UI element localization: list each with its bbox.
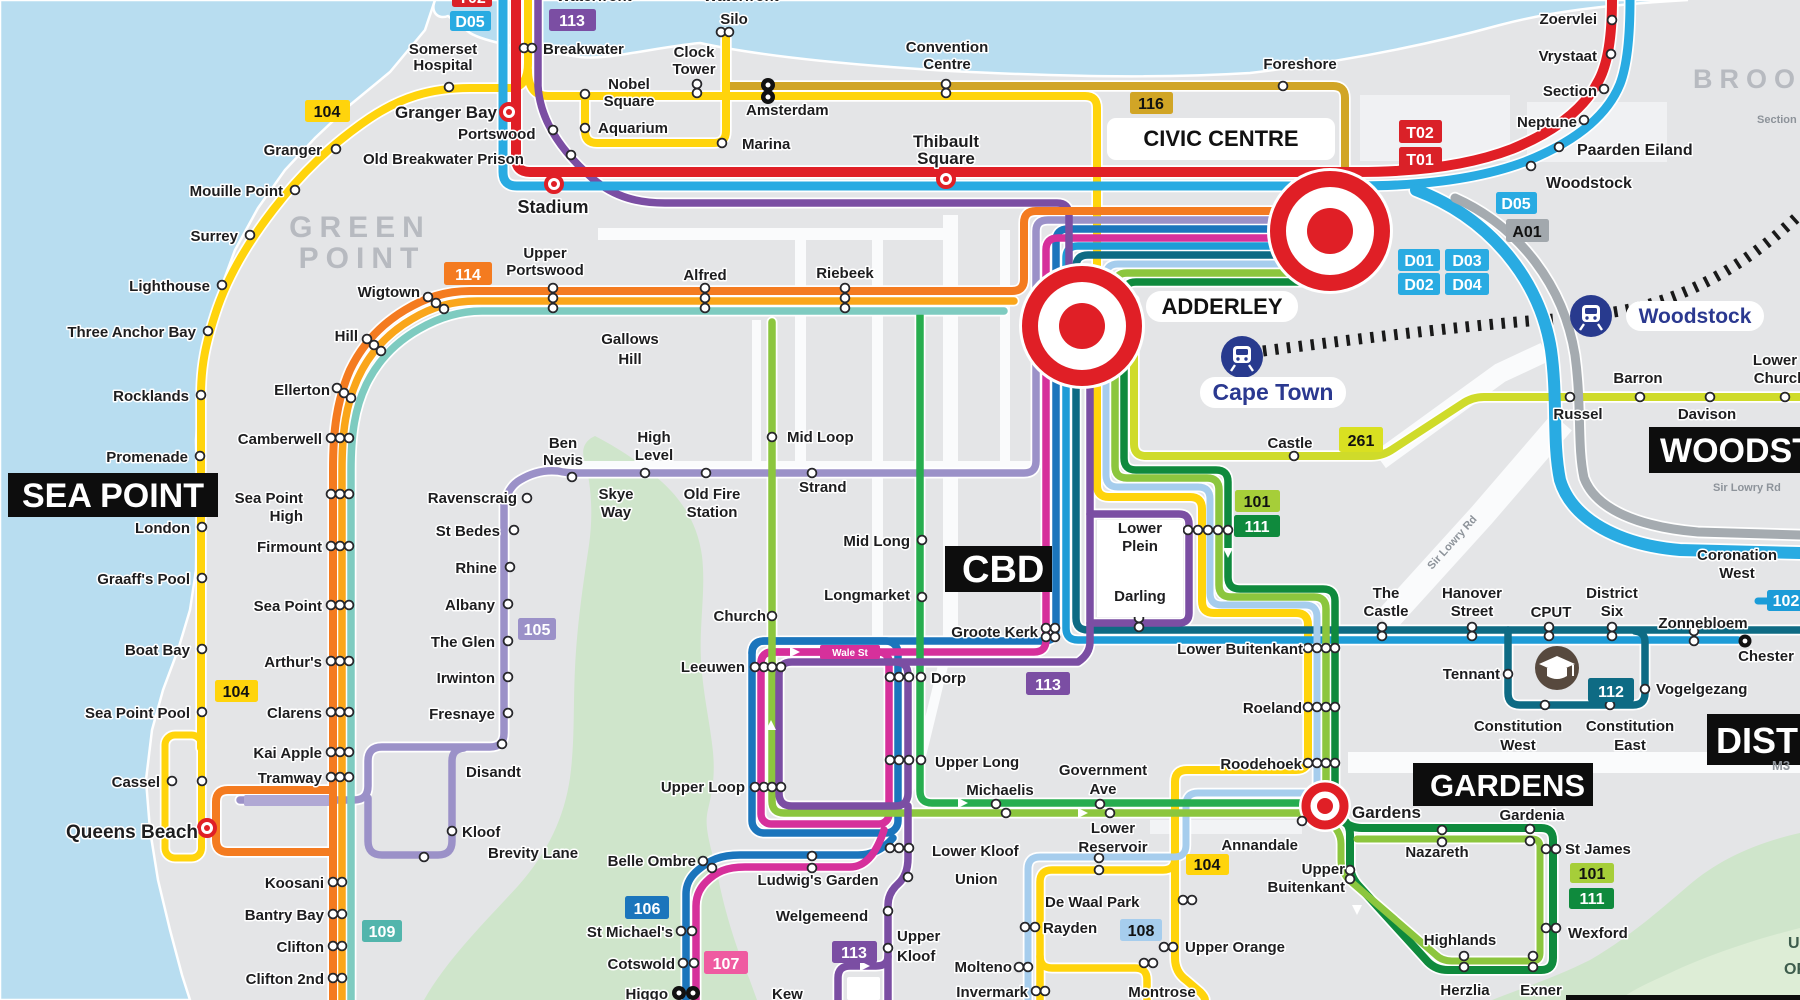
svg-text:OF: OF: [1784, 961, 1800, 978]
svg-text:Rocklands: Rocklands: [113, 388, 189, 405]
svg-text:Promenade: Promenade: [106, 449, 188, 466]
svg-text:Vrystaat: Vrystaat: [1539, 48, 1597, 65]
svg-text:Fresnaye: Fresnaye: [429, 706, 495, 723]
svg-text:ADDERLEY: ADDERLEY: [1161, 294, 1282, 319]
svg-text:D02: D02: [1404, 277, 1433, 294]
svg-text:GREEN: GREEN: [289, 211, 431, 244]
svg-text:D03: D03: [1452, 253, 1481, 270]
svg-text:Castle: Castle: [1267, 435, 1312, 452]
svg-text:112: 112: [1598, 684, 1624, 701]
svg-text:GARDENS: GARDENS: [1430, 768, 1585, 803]
svg-text:Constitution: Constitution: [1586, 718, 1674, 735]
svg-text:Barron: Barron: [1613, 370, 1662, 387]
svg-text:Queens Beach: Queens Beach: [66, 822, 198, 843]
svg-text:Wale St: Wale St: [832, 648, 868, 659]
svg-text:Rayden: Rayden: [1043, 920, 1097, 937]
svg-text:Old Breakwater Prison: Old Breakwater Prison: [363, 151, 524, 168]
svg-text:Irwinton: Irwinton: [437, 670, 495, 687]
svg-text:Ave: Ave: [1090, 781, 1117, 798]
svg-text:Nazareth: Nazareth: [1405, 844, 1468, 861]
svg-text:Molteno: Molteno: [955, 959, 1013, 976]
svg-text:D05: D05: [1501, 196, 1530, 213]
svg-text:Woodstock: Woodstock: [1639, 305, 1752, 328]
svg-text:Cape Town: Cape Town: [1213, 379, 1334, 405]
svg-text:Brevity Lane: Brevity Lane: [488, 845, 578, 862]
svg-text:Belle Ombre: Belle Ombre: [608, 853, 696, 870]
svg-text:St Bedes: St Bedes: [436, 523, 500, 540]
svg-text:261: 261: [1348, 433, 1375, 450]
svg-text:Higgo: Higgo: [626, 986, 669, 1000]
svg-text:Nobel: Nobel: [608, 76, 650, 93]
svg-text:Hill: Hill: [618, 351, 641, 368]
svg-text:Herzlia: Herzlia: [1440, 982, 1490, 999]
svg-text:Three Anchor Bay: Three Anchor Bay: [67, 324, 196, 341]
svg-text:Portswood: Portswood: [506, 262, 584, 279]
svg-text:Kloof: Kloof: [462, 824, 501, 841]
svg-text:St James: St James: [1565, 841, 1631, 858]
svg-text:High: High: [637, 429, 670, 446]
svg-text:Ludwig's Garden: Ludwig's Garden: [757, 872, 878, 889]
svg-text:Square: Square: [917, 149, 975, 168]
svg-text:Sea Point: Sea Point: [235, 490, 303, 507]
svg-text:Church: Church: [1754, 370, 1800, 387]
svg-text:111: 111: [1245, 519, 1270, 536]
svg-text:Welgemeend: Welgemeend: [776, 908, 868, 925]
svg-text:Lower Kloof: Lower Kloof: [932, 843, 1020, 860]
svg-text:111: 111: [1580, 891, 1605, 908]
svg-text:Longmarket: Longmarket: [824, 587, 910, 604]
svg-text:Old Fire: Old Fire: [684, 486, 741, 503]
svg-text:Union: Union: [955, 871, 998, 888]
svg-text:Clifton: Clifton: [277, 939, 324, 956]
svg-text:Six: Six: [1601, 603, 1624, 620]
svg-text:Convention: Convention: [906, 39, 989, 56]
svg-text:Cassel: Cassel: [112, 774, 160, 791]
svg-text:WOODSTO: WOODSTO: [1660, 432, 1800, 470]
svg-text:Disandt: Disandt: [466, 764, 521, 781]
svg-text:Camberwell: Camberwell: [238, 431, 322, 448]
svg-text:Lower: Lower: [1091, 820, 1135, 837]
svg-text:Mouille Point: Mouille Point: [190, 183, 283, 200]
svg-text:113: 113: [1035, 677, 1061, 694]
svg-text:Ravenscraig: Ravenscraig: [428, 490, 517, 507]
svg-text:Cotswold: Cotswold: [608, 956, 676, 973]
svg-text:Hill: Hill: [335, 328, 358, 345]
svg-text:Foreshore: Foreshore: [1263, 56, 1336, 73]
svg-text:Church: Church: [714, 608, 767, 625]
svg-text:High: High: [270, 508, 303, 525]
svg-text:Michaelis: Michaelis: [966, 782, 1034, 799]
svg-text:104: 104: [1194, 857, 1221, 874]
svg-text:Highlands: Highlands: [1424, 932, 1497, 949]
svg-text:Exner: Exner: [1520, 982, 1562, 999]
svg-text:Davison: Davison: [1678, 406, 1736, 423]
svg-text:104: 104: [314, 104, 341, 121]
svg-text:The Glen: The Glen: [431, 634, 495, 651]
svg-text:Street: Street: [1451, 603, 1494, 620]
svg-text:London: London: [135, 520, 190, 537]
svg-text:104: 104: [223, 684, 250, 701]
svg-text:POINT: POINT: [299, 242, 426, 275]
svg-text:West: West: [1500, 737, 1536, 754]
svg-text:Way: Way: [601, 504, 632, 521]
svg-text:102: 102: [1773, 593, 1800, 610]
svg-text:108: 108: [1128, 923, 1155, 940]
svg-text:Sea Point: Sea Point: [254, 598, 322, 615]
svg-text:CBD: CBD: [962, 549, 1044, 591]
svg-text:Mid Loop: Mid Loop: [787, 429, 854, 446]
svg-text:Mid Long: Mid Long: [843, 533, 910, 550]
svg-text:Buitenkant: Buitenkant: [1267, 879, 1345, 896]
svg-text:UN: UN: [1788, 935, 1800, 952]
svg-text:Wigtown: Wigtown: [358, 284, 420, 301]
svg-text:Clarens: Clarens: [267, 705, 322, 722]
svg-text:Square: Square: [604, 93, 655, 110]
svg-text:Clifton 2nd: Clifton 2nd: [246, 971, 324, 988]
svg-text:Zoervlei: Zoervlei: [1539, 11, 1597, 28]
svg-text:Section: Section: [1757, 114, 1797, 126]
svg-text:Aquarium: Aquarium: [598, 120, 668, 137]
svg-text:Invermark: Invermark: [956, 984, 1028, 1000]
svg-text:Kloof: Kloof: [897, 948, 936, 965]
svg-text:Paarden Eiland: Paarden Eiland: [1577, 142, 1693, 159]
svg-text:Sir Lowry Rd: Sir Lowry Rd: [1713, 482, 1781, 494]
svg-text:DISTR: DISTR: [1716, 720, 1800, 761]
svg-text:Albany: Albany: [445, 597, 496, 614]
svg-text:Annandale: Annandale: [1221, 837, 1298, 854]
svg-text:St Michael's: St Michael's: [587, 924, 673, 941]
svg-text:Upper: Upper: [523, 245, 567, 262]
svg-text:Tennant: Tennant: [1443, 666, 1500, 683]
svg-text:Kai Apple: Kai Apple: [253, 745, 322, 762]
svg-text:Upper Orange: Upper Orange: [1185, 939, 1285, 956]
svg-text:Castle: Castle: [1363, 603, 1408, 620]
svg-text:Section: Section: [1543, 83, 1597, 100]
svg-text:Montrose: Montrose: [1128, 984, 1196, 1000]
svg-text:Kew: Kew: [772, 986, 803, 1000]
svg-text:Centre: Centre: [923, 56, 971, 73]
svg-text:Rhine: Rhine: [455, 560, 497, 577]
svg-text:Upper: Upper: [897, 928, 941, 945]
svg-text:D05: D05: [455, 14, 484, 31]
svg-text:Chester: Chester: [1738, 648, 1794, 665]
svg-text:Station: Station: [687, 504, 738, 521]
svg-text:De Waal Park: De Waal Park: [1045, 894, 1140, 911]
svg-text:T02: T02: [458, 0, 486, 7]
svg-text:Riebeek: Riebeek: [816, 265, 874, 282]
svg-text:Upper Loop: Upper Loop: [661, 779, 745, 796]
svg-text:East: East: [1614, 737, 1646, 754]
svg-text:Russel: Russel: [1553, 406, 1602, 423]
svg-text:Amsterdam: Amsterdam: [746, 102, 829, 119]
svg-text:CIVIC CENTRE: CIVIC CENTRE: [1143, 126, 1298, 151]
svg-text:Gardens: Gardens: [1352, 803, 1421, 822]
svg-text:Darling: Darling: [1114, 588, 1166, 605]
svg-text:Hospital: Hospital: [413, 57, 472, 74]
svg-text:District: District: [1586, 585, 1638, 602]
svg-text:116: 116: [1138, 96, 1164, 113]
svg-text:Portswood: Portswood: [458, 126, 536, 143]
svg-text:Coronation: Coronation: [1697, 547, 1777, 564]
svg-text:Waterfront: Waterfront: [556, 0, 631, 5]
svg-text:Dorp: Dorp: [931, 670, 966, 687]
svg-text:Sea Point Pool: Sea Point Pool: [85, 705, 190, 722]
svg-text:Roodehoek: Roodehoek: [1220, 756, 1302, 773]
svg-text:Ellerton: Ellerton: [274, 382, 330, 399]
svg-text:Lower: Lower: [1753, 352, 1797, 369]
svg-text:Strand: Strand: [799, 479, 847, 496]
svg-text:Woodstock: Woodstock: [1546, 175, 1632, 192]
svg-text:113: 113: [559, 13, 585, 30]
svg-text:West: West: [1719, 565, 1755, 582]
svg-text:101: 101: [1579, 866, 1606, 883]
svg-text:T02: T02: [1406, 125, 1434, 142]
svg-text:Lighthouse: Lighthouse: [129, 278, 210, 295]
svg-text:Roeland: Roeland: [1243, 700, 1302, 717]
svg-text:Somerset: Somerset: [409, 41, 477, 58]
svg-text:Waterfront: Waterfront: [703, 0, 778, 5]
svg-text:Plein: Plein: [1122, 538, 1158, 555]
svg-text:CPUT: CPUT: [1531, 604, 1572, 621]
svg-text:114: 114: [455, 267, 481, 284]
svg-text:Nevis: Nevis: [543, 452, 583, 469]
svg-text:Government: Government: [1059, 762, 1147, 779]
svg-text:Constitution: Constitution: [1474, 718, 1562, 735]
svg-text:Hanover: Hanover: [1442, 585, 1502, 602]
svg-text:Boat Bay: Boat Bay: [125, 642, 191, 659]
svg-text:T01: T01: [1406, 152, 1434, 169]
svg-text:Koosani: Koosani: [265, 875, 324, 892]
svg-text:Tramway: Tramway: [258, 770, 323, 787]
svg-text:Vogelgezang: Vogelgezang: [1656, 681, 1747, 698]
svg-text:D01: D01: [1404, 253, 1433, 270]
svg-text:Upper Long: Upper Long: [935, 754, 1019, 771]
svg-text:Clock: Clock: [674, 44, 716, 61]
svg-text:A01: A01: [1512, 224, 1541, 241]
svg-text:Upper: Upper: [1302, 861, 1346, 878]
svg-text:Granger: Granger: [264, 142, 323, 159]
svg-text:Marina: Marina: [742, 136, 791, 153]
svg-text:D04: D04: [1452, 277, 1481, 294]
svg-text:Ben: Ben: [549, 435, 577, 452]
svg-text:105: 105: [524, 622, 551, 639]
svg-text:Graaff's Pool: Graaff's Pool: [97, 571, 190, 588]
svg-text:Arthur's: Arthur's: [264, 654, 322, 671]
svg-text:Leeuwen: Leeuwen: [681, 659, 745, 676]
svg-text:Lower Buitenkant: Lower Buitenkant: [1177, 641, 1303, 658]
svg-text:101: 101: [1244, 494, 1271, 511]
svg-text:Breakwater: Breakwater: [543, 41, 624, 58]
svg-text:Tower: Tower: [672, 61, 715, 78]
svg-text:Gallows: Gallows: [601, 331, 659, 348]
svg-text:Silo: Silo: [720, 11, 748, 28]
svg-text:The: The: [1373, 585, 1400, 602]
svg-text:Groote Kerk: Groote Kerk: [951, 624, 1038, 641]
svg-text:Granger Bay: Granger Bay: [395, 103, 498, 122]
svg-text:Alfred: Alfred: [683, 267, 726, 284]
svg-text:Reservoir: Reservoir: [1078, 839, 1147, 856]
svg-text:M3: M3: [1772, 758, 1790, 773]
svg-text:113: 113: [841, 945, 867, 962]
svg-text:Level: Level: [635, 447, 673, 464]
svg-text:109: 109: [369, 924, 396, 941]
svg-text:107: 107: [713, 956, 740, 973]
svg-text:BROOKL: BROOKL: [1693, 64, 1800, 94]
svg-text:Bantry Bay: Bantry Bay: [245, 907, 325, 924]
svg-text:SEA POINT: SEA POINT: [22, 477, 204, 515]
svg-text:Skye: Skye: [598, 486, 633, 503]
svg-text:Lower: Lower: [1118, 520, 1162, 537]
svg-text:Wexford: Wexford: [1568, 925, 1628, 942]
svg-text:Zonnebloem: Zonnebloem: [1658, 615, 1747, 632]
svg-text:Firmount: Firmount: [257, 539, 322, 556]
svg-text:Neptune: Neptune: [1517, 114, 1577, 131]
svg-text:Surrey: Surrey: [190, 228, 238, 245]
svg-text:106: 106: [634, 901, 661, 918]
svg-text:Gardenia: Gardenia: [1499, 807, 1565, 824]
svg-text:Stadium: Stadium: [517, 197, 588, 217]
